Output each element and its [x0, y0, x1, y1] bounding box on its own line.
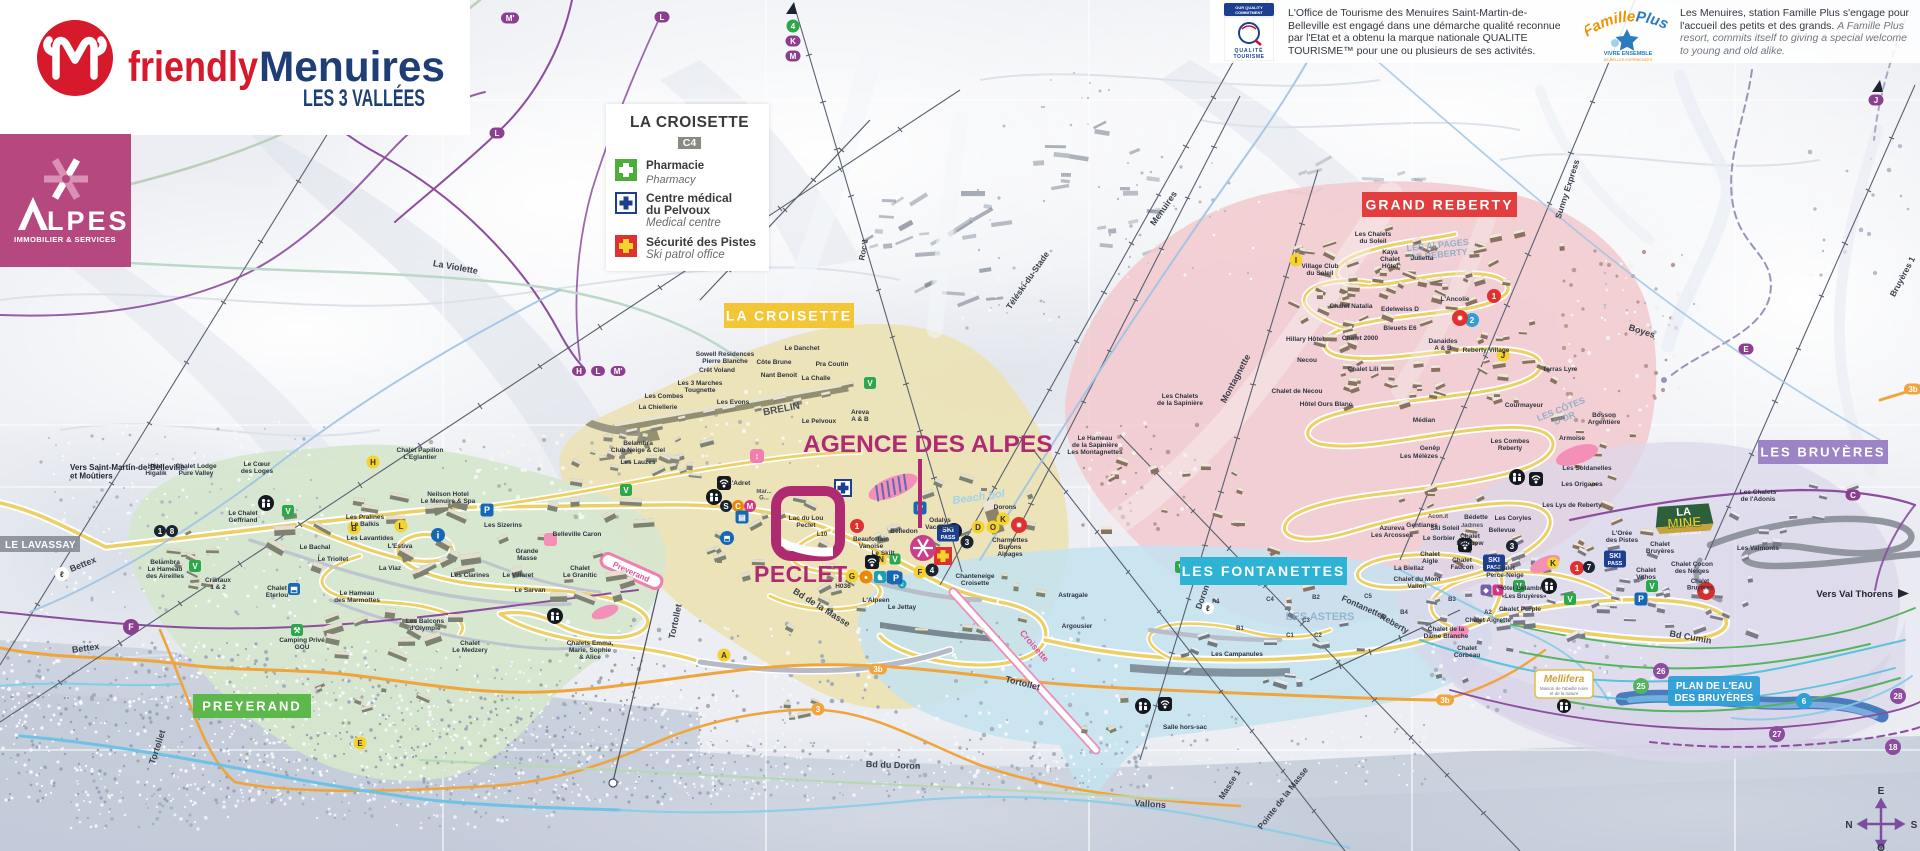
svg-text:7: 7 — [1587, 563, 1592, 572]
svg-text:J: J — [1874, 96, 1878, 105]
svg-text:AGENCE DES ALPES: AGENCE DES ALPES — [803, 431, 1053, 458]
svg-text:Hillary Hôtel: Hillary Hôtel — [1286, 336, 1324, 343]
svg-text:27: 27 — [1773, 730, 1782, 739]
svg-text:A1: A1 — [1212, 599, 1220, 605]
svg-text:18: 18 — [1889, 743, 1898, 752]
svg-text:M: M — [790, 52, 797, 61]
svg-text:3: 3 — [1510, 542, 1515, 551]
svg-text:1: 1 — [1575, 564, 1580, 573]
svg-text:LE LAVASSAY: LE LAVASSAY — [5, 540, 76, 551]
svg-text:V: V — [867, 379, 873, 388]
svg-text:26: 26 — [1657, 667, 1666, 676]
svg-text:La Biellaz: La Biellaz — [1394, 565, 1425, 572]
svg-text:Le Hameaudes Marmottes: Le Hameaudes Marmottes — [334, 590, 380, 604]
svg-text:✹: ✹ — [1015, 522, 1023, 530]
svg-text:Chalet PapillonL'Eglantier: Chalet PapillonL'Eglantier — [397, 447, 444, 461]
svg-text:L'Adret: L'Adret — [728, 480, 751, 487]
svg-text:LES ASTERS: LES ASTERS — [1286, 611, 1355, 623]
svg-text:La Viaz: La Viaz — [379, 565, 402, 572]
svg-text:B4: B4 — [1400, 610, 1408, 616]
svg-text:LES FONTANETTES: LES FONTANETTES — [1182, 563, 1346, 579]
svg-text:S: S — [723, 502, 729, 511]
svg-text:8: 8 — [170, 527, 175, 536]
svg-text:SKI: SKI — [1488, 557, 1500, 564]
svg-text:friendly: friendly — [128, 43, 258, 91]
svg-text:L: L — [399, 522, 404, 531]
svg-text:O: O — [1877, 843, 1885, 851]
svg-text:P: P — [484, 505, 490, 515]
svg-text:↕: ↕ — [755, 451, 760, 461]
svg-text:ℓ: ℓ — [1206, 604, 1210, 613]
svg-text:Dorons: Dorons — [994, 504, 1017, 511]
svg-text:Les Chaletsde la Sapinière: Les Chaletsde la Sapinière — [1157, 393, 1203, 407]
svg-text:ℓ: ℓ — [60, 570, 64, 579]
svg-text:Les Sizerins: Les Sizerins — [484, 522, 522, 529]
svg-text:S: S — [1911, 820, 1918, 831]
svg-text:ChaletVithos: ChaletVithos — [1636, 567, 1657, 581]
svg-text:Chalet de laDame Blanche: Chalet de laDame Blanche — [1424, 626, 1469, 640]
svg-text:Acon.it: Acon.it — [1428, 514, 1448, 520]
svg-text:E: E — [1878, 786, 1885, 797]
svg-text:3b: 3b — [873, 665, 882, 674]
svg-text:Les Chaletsde l'Adonis: Les Chaletsde l'Adonis — [1740, 489, 1777, 503]
svg-text:1: 1 — [1492, 292, 1497, 301]
svg-text:L: L — [596, 367, 601, 376]
svg-text:B1: B1 — [1236, 626, 1244, 632]
svg-text:Necou: Necou — [1297, 357, 1317, 364]
svg-text:Les Clarines: Les Clarines — [451, 572, 490, 579]
svg-text:V: V — [285, 507, 291, 516]
svg-text:PLAN DE L'EAU: PLAN DE L'EAU — [1676, 681, 1752, 692]
svg-text:Les Lys de Reberty: Les Lys de Reberty — [1542, 502, 1602, 509]
svg-text:1: 1 — [855, 522, 860, 531]
svg-text:SKI: SKI — [1609, 553, 1621, 560]
svg-text:L10: L10 — [817, 532, 828, 538]
svg-text:K: K — [1000, 515, 1006, 524]
svg-text:ChaletEterlou: ChaletEterlou — [266, 585, 288, 599]
svg-text:BossonArgentière: BossonArgentière — [1588, 412, 1621, 426]
svg-text:28: 28 — [1894, 692, 1903, 701]
svg-text:G: G — [849, 572, 855, 581]
svg-text:MINE: MINE — [1667, 514, 1702, 531]
svg-text:Reberty Village: Reberty Village — [1463, 347, 1510, 354]
svg-text:Bleuets E6: Bleuets E6 — [1383, 325, 1417, 332]
svg-text:I: I — [1295, 256, 1297, 265]
svg-text:3: 3 — [816, 705, 821, 714]
svg-text:Nant Benoit: Nant Benoit — [761, 372, 798, 379]
svg-text:3: 3 — [965, 538, 970, 547]
svg-text:D: D — [975, 523, 981, 532]
svg-text:C: C — [735, 502, 741, 511]
svg-text:N: N — [1845, 820, 1852, 831]
svg-text:Village Clubdu Soleil: Village Clubdu Soleil — [1301, 263, 1338, 277]
svg-text:Chalet Aigrette: Chalet Aigrette — [1465, 617, 1511, 624]
svg-text:C3: C3 — [1302, 618, 1310, 624]
svg-text:Le Cœurdes Loges: Le Cœurdes Loges — [241, 461, 274, 475]
svg-text:Les Valmonts: Les Valmonts — [1737, 545, 1779, 552]
svg-text:1: 1 — [158, 527, 163, 536]
svg-text:M: M — [747, 502, 754, 511]
svg-text:V: V — [623, 486, 629, 495]
svg-text:Les Combes: Les Combes — [645, 393, 684, 400]
svg-text:⚒: ⚒ — [293, 626, 300, 635]
svg-text:Jadines: Jadines — [1461, 523, 1484, 529]
svg-text:Les Soldanelles: Les Soldanelles — [1562, 465, 1612, 472]
svg-text:DE BELLES EXPÉRIENCES: DE BELLES EXPÉRIENCES — [1604, 57, 1653, 62]
svg-text:Le Danchet: Le Danchet — [784, 345, 820, 352]
svg-text:Courmayeur: Courmayeur — [1505, 402, 1544, 409]
svg-text:Médian: Médian — [1413, 417, 1435, 424]
svg-text:L'Alpeen: L'Alpeen — [862, 597, 889, 604]
svg-text:⬒: ⬒ — [290, 585, 298, 594]
svg-text:Le Sorbier: Le Sorbier — [1423, 535, 1456, 542]
svg-text:Terras Lyre: Terras Lyre — [1543, 366, 1578, 373]
svg-text:ChaletCorbeau: ChaletCorbeau — [1454, 645, 1480, 659]
svg-text:GRAND REBERTY: GRAND REBERTY — [1365, 197, 1513, 213]
svg-text:4: 4 — [791, 22, 796, 31]
svg-text:✹: ✹ — [1456, 315, 1464, 323]
svg-text:Belleville Caron: Belleville Caron — [553, 531, 602, 538]
svg-text:L: L — [495, 129, 500, 138]
svg-text:6: 6 — [1802, 697, 1807, 706]
svg-text:25: 25 — [1637, 682, 1646, 691]
svg-text:VIVRE ENSEMBLE: VIVRE ENSEMBLE — [1604, 51, 1653, 57]
svg-text:M': M' — [614, 367, 623, 376]
svg-text:COMMITMENT: COMMITMENT — [1235, 10, 1263, 15]
svg-text:L'Ancolie: L'Ancolie — [1441, 296, 1470, 303]
svg-text:GrandeMasse: GrandeMasse — [516, 548, 539, 562]
svg-text:i: i — [437, 531, 440, 542]
svg-text:PASS: PASS — [941, 535, 956, 541]
svg-text:C1: C1 — [1286, 633, 1294, 639]
svg-text:◆: ◆ — [1482, 588, 1489, 595]
svg-text:V: V — [192, 562, 198, 571]
svg-text:Les Coryles: Les Coryles — [1495, 515, 1532, 522]
svg-text:LPES: LPES — [47, 206, 130, 236]
svg-text:K: K — [790, 37, 796, 46]
svg-text:Les Balconsd'Olympie: Les Balconsd'Olympie — [406, 618, 445, 632]
svg-text:V: V — [1649, 582, 1655, 591]
svg-text:Le Sarvan: Le Sarvan — [514, 587, 545, 594]
svg-text:Les Lauzes: Les Lauzes — [620, 459, 655, 466]
svg-text:Bellevue: Bellevue — [1489, 527, 1516, 534]
svg-text:Le Triollet: Le Triollet — [318, 556, 350, 563]
svg-text:Vers Val Thorens: Vers Val Thorens — [1816, 589, 1893, 600]
svg-text:LES 3 VALLÉES: LES 3 VALLÉES — [303, 84, 425, 112]
svg-text:H: H — [576, 367, 582, 376]
svg-text:P: P — [893, 573, 899, 583]
svg-text:PASS: PASS — [1608, 561, 1623, 567]
svg-text:Bédette: Bédette — [1464, 514, 1488, 521]
svg-text:ArevaA & B: ArevaA & B — [851, 409, 869, 423]
svg-text:BelambraLe Hameaudes Aireilles: BelambraLe Hameaudes Aireilles — [146, 559, 184, 580]
svg-text:Le Jettay: Le Jettay — [888, 604, 917, 611]
svg-text:Argousier: Argousier — [1062, 623, 1093, 630]
svg-text:Hôtel Ours Blanc: Hôtel Ours Blanc — [1300, 401, 1353, 408]
svg-text:Chalet 2000: Chalet 2000 — [1342, 335, 1379, 342]
svg-text:V: V — [1567, 595, 1573, 604]
svg-text:Edelweiss D: Edelweiss D — [1381, 306, 1419, 313]
svg-text:L'Estiva: L'Estiva — [388, 543, 413, 550]
svg-text:Les PralinesLe Balkis: Les PralinesLe Balkis — [346, 514, 385, 528]
svg-text:3b: 3b — [1908, 385, 1917, 394]
svg-text:P: P — [1638, 594, 1644, 604]
svg-text:F: F — [128, 622, 134, 632]
svg-text:Belledon: Belledon — [890, 528, 917, 535]
svg-text:M': M' — [506, 14, 515, 23]
svg-text:H: H — [370, 458, 376, 467]
svg-text:B2: B2 — [1312, 595, 1320, 601]
svg-text:HôtelHigalik: HôtelHigalik — [145, 463, 167, 477]
svg-text:La Challe: La Challe — [802, 375, 831, 382]
svg-text:Les Mélèzes: Les Mélèzes — [1400, 453, 1438, 460]
svg-text:▤: ▤ — [738, 513, 746, 522]
svg-text:OdalysVacances: OdalysVacances — [925, 517, 955, 531]
svg-text:Astragale: Astragale — [1058, 592, 1088, 599]
svg-text:Côte Brune: Côte Brune — [756, 359, 791, 366]
svg-text:Chalet Purple: Chalet Purple — [1499, 606, 1541, 613]
svg-text:QUALITÉ: QUALITÉ — [1235, 46, 1264, 54]
svg-text:Genêp: Genêp — [1420, 445, 1440, 452]
svg-text:ChanteneigeCroisette: ChanteneigeCroisette — [955, 573, 994, 587]
svg-text:C2: C2 — [1314, 633, 1322, 639]
svg-text:●: ● — [864, 575, 868, 582]
svg-text:IMMOBILIER & SERVICES: IMMOBILIER & SERVICES — [14, 235, 116, 244]
svg-text:♞: ♞ — [876, 573, 883, 582]
svg-text:Bd du Doron: Bd du Doron — [866, 759, 921, 771]
svg-text:Les Chaletsdu Soleil: Les Chaletsdu Soleil — [1355, 231, 1392, 245]
svg-text:B3: B3 — [1448, 597, 1456, 603]
svg-text:C5: C5 — [1364, 594, 1372, 600]
svg-text:C: C — [1850, 491, 1856, 500]
svg-text:Menuires: Menuires — [259, 43, 445, 91]
svg-text:Les Origanes: Les Origanes — [1561, 481, 1603, 488]
svg-text:Ski Soleil: Ski Soleil — [1431, 525, 1460, 532]
svg-text:E: E — [357, 739, 363, 748]
svg-text:Chalet Çocondes Neiges: Chalet Çocondes Neiges — [1671, 561, 1713, 575]
svg-text:C4: C4 — [1266, 597, 1274, 603]
svg-text:Pra Coutin: Pra Coutin — [816, 361, 849, 368]
svg-text:Crêt Voland: Crêt Voland — [699, 367, 735, 374]
svg-text:KayaChaletHôtel: KayaChaletHôtel — [1380, 249, 1401, 270]
svg-text:TOURISME: TOURISME — [1233, 54, 1264, 60]
svg-text:Julietta: Julietta — [1411, 255, 1434, 262]
svg-text:K: K — [1550, 559, 1556, 568]
svg-text:ChaletFaucon: ChaletFaucon — [1450, 557, 1473, 571]
svg-text:L: L — [660, 13, 665, 22]
svg-text:Le Pelvoux: Le Pelvoux — [802, 418, 837, 425]
svg-text:LES BRUYÈRES: LES BRUYÈRES — [1760, 445, 1885, 460]
svg-text:et de la nature: et de la nature — [1550, 691, 1579, 696]
svg-text:Neilson HotelLe Menuire & Spa: Neilson HotelLe Menuire & Spa — [421, 491, 476, 505]
svg-text:Chalet de Necou: Chalet de Necou — [1272, 388, 1323, 395]
svg-text:Hôtel Belambra: Hôtel Belambra — [1498, 585, 1546, 592]
svg-text:Les Campanules: Les Campanules — [1211, 651, 1263, 658]
svg-text:F: F — [918, 568, 923, 577]
svg-text:A2: A2 — [1484, 610, 1492, 616]
svg-text:Salle hors-sac: Salle hors-sac — [1163, 724, 1207, 731]
svg-text:Chalet Natalia: Chalet Natalia — [1330, 303, 1373, 310]
svg-text:LA CROISETTE: LA CROISETTE — [726, 308, 852, 324]
svg-text:A: A — [721, 651, 727, 660]
svg-text:«Les Bruyères»: «Les Bruyères» — [1502, 594, 1547, 600]
svg-text:O: O — [990, 523, 996, 532]
svg-text:Le Villaret: Le Villaret — [503, 572, 535, 579]
svg-text:Chalet Lili: Chalet Lili — [1347, 366, 1378, 373]
svg-text:Les Evons: Les Evons — [717, 399, 750, 406]
svg-text:Le ChaletGeffriand: Le ChaletGeffriand — [228, 510, 258, 524]
svg-text:Armoise: Armoise — [1559, 435, 1585, 442]
svg-text:Le Bachal: Le Bachal — [300, 544, 331, 551]
svg-text:Sowell ResidencesPierre Blanch: Sowell ResidencesPierre Blanche — [696, 351, 755, 365]
svg-text:E: E — [1743, 345, 1749, 354]
svg-text:4: 4 — [930, 566, 935, 575]
svg-text:Le Skilt: Le Skilt — [871, 550, 895, 557]
svg-text:PREYERAND: PREYERAND — [202, 699, 302, 714]
svg-text:3b: 3b — [1440, 696, 1449, 705]
svg-text:PECLET: PECLET — [754, 561, 848, 587]
svg-text:Mellifera: Mellifera — [1544, 674, 1585, 685]
svg-text:Chalet LodgePure Valley: Chalet LodgePure Valley — [175, 463, 217, 477]
svg-text:La Chiellerie: La Chiellerie — [639, 404, 678, 411]
svg-text:⬒: ⬒ — [724, 536, 731, 543]
svg-text:ChaletAigle: ChaletAigle — [1420, 551, 1441, 565]
svg-text:Les Lavantides: Les Lavantides — [347, 535, 394, 542]
svg-text:2: 2 — [1470, 316, 1475, 325]
svg-text:DES BRUYÈRES: DES BRUYÈRES — [1675, 691, 1754, 704]
